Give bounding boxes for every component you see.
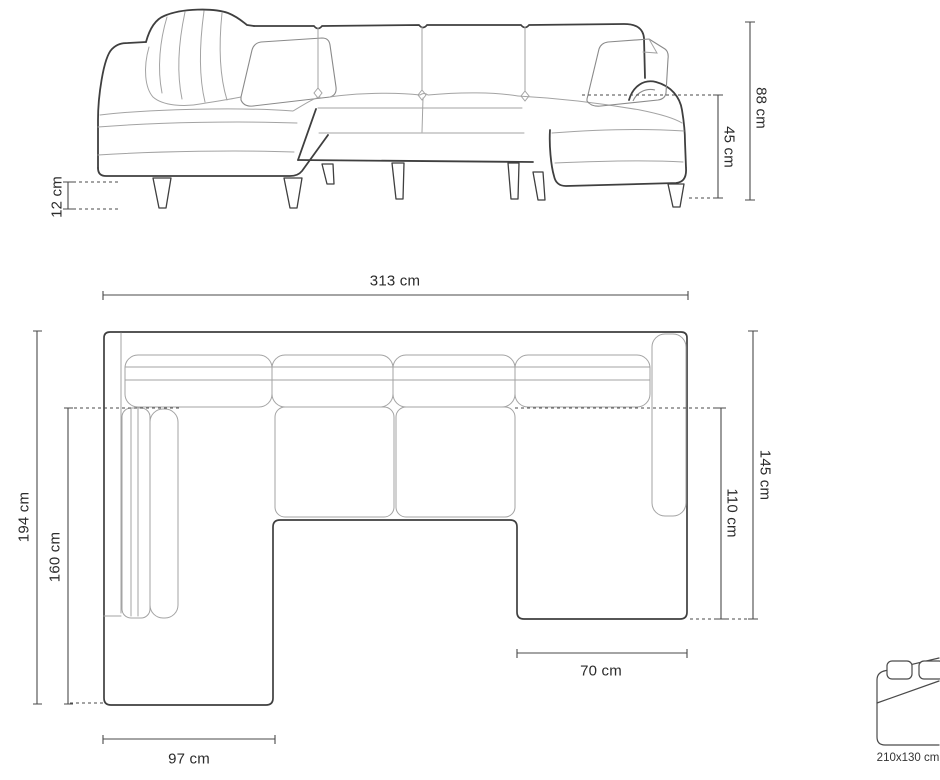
backrest-rail [254, 24, 645, 78]
right-arm-cushion [652, 334, 686, 516]
dim-line-leg-height [63, 182, 120, 209]
sofa-bed-icon [877, 658, 940, 745]
label-right-inner-depth: 110 cm [724, 488, 741, 537]
back-cushion [125, 355, 272, 407]
label-total-width: 313 cm [370, 273, 420, 290]
label-right-depth: 145 cm [757, 450, 774, 500]
plan-footprint-outline [104, 332, 687, 705]
back-pillow-stripe [220, 13, 227, 100]
technical-drawing [0, 0, 940, 780]
label-right-chaise-width: 70 cm [580, 663, 622, 680]
back-pillow-stripe [179, 12, 185, 99]
seam-tuft [314, 88, 322, 98]
bed-pillow [919, 661, 940, 679]
bench-left-edge [298, 109, 316, 160]
plan-sofa-drawing [104, 332, 687, 705]
back-cushion [272, 355, 393, 407]
left-seat-top [100, 97, 320, 115]
back-pillow-stripe [160, 17, 167, 93]
dim-line-left-chaise-width [103, 735, 275, 744]
dim-line-right-inner-depth [68, 408, 726, 619]
middle-seat-top [330, 93, 518, 97]
left-chaise-arm-pad [122, 408, 150, 618]
sofa-leg [153, 178, 171, 208]
sofa-leg [508, 163, 519, 199]
throw-pillow-left [241, 38, 336, 106]
elevation-sofa-drawing [98, 10, 686, 208]
label-total-height: 88 cm [753, 87, 770, 129]
label-leg-height: 12 cm [49, 176, 66, 218]
left-base-outline [98, 135, 328, 176]
sofa-leg [668, 184, 684, 207]
label-seat-height: 45 cm [721, 126, 738, 168]
right-arm-chaise-outline [550, 81, 686, 186]
dim-line-right-depth [690, 331, 758, 619]
dim-line-total-width [103, 291, 688, 300]
dim-line-right-chaise-width [517, 649, 687, 658]
seat-cushion [396, 407, 515, 517]
right-face-line [552, 130, 684, 133]
left-arm-inner-edge [104, 333, 121, 616]
bench-bottom [298, 160, 533, 162]
label-left-chaise-width: 97 cm [168, 751, 210, 768]
left-arm-outline [98, 42, 146, 168]
right-face-line [555, 161, 683, 163]
left-face-line [98, 151, 294, 155]
throw-pillow-right [587, 39, 668, 106]
arm-pad-stripe [131, 409, 138, 616]
back-pillow-stripe [200, 11, 205, 102]
label-total-depth: 194 cm [16, 492, 33, 542]
label-left-chaise-depth: 160 cm [47, 532, 64, 582]
seat-cushion [275, 407, 394, 517]
dim-line-left-chaise-depth [64, 408, 103, 704]
back-cushion-fold-lines [125, 367, 650, 380]
left-chaise-cushion [150, 409, 178, 618]
left-face-line [98, 122, 297, 127]
back-cushion [393, 355, 515, 407]
label-sleeping-area-size: 210x130 cm [877, 752, 940, 764]
seat-seam [422, 98, 423, 132]
sofa-leg [533, 172, 545, 200]
bed-pillow [887, 661, 912, 679]
dim-line-seat-height [582, 95, 723, 198]
back-cushion [515, 355, 650, 407]
sofa-leg [392, 163, 404, 199]
sofa-dimensions-diagram: 12 cm 45 cm 88 cm 313 cm 194 cm 160 cm 1… [0, 0, 940, 780]
sofa-leg [322, 164, 334, 184]
dim-line-total-depth [33, 331, 42, 704]
sofa-leg [284, 178, 302, 208]
